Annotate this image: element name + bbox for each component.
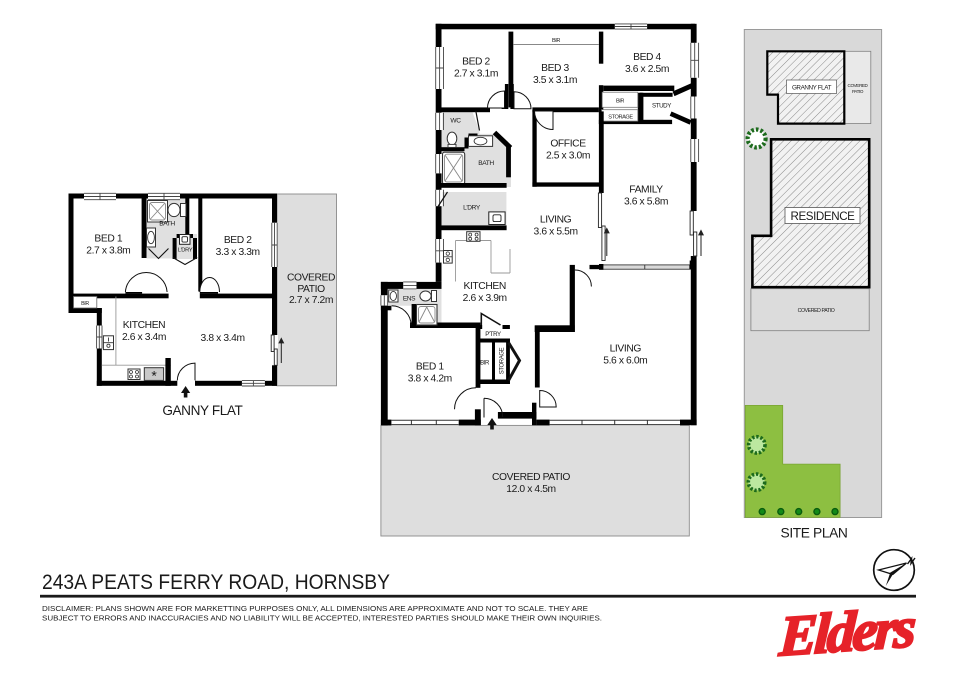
svg-text:3.8 x 4.2m: 3.8 x 4.2m: [408, 374, 452, 385]
svg-text:243A PEATS FERRY ROAD, HORNSBY: 243A PEATS FERRY ROAD, HORNSBY: [42, 569, 390, 594]
svg-text:LIVING: LIVING: [540, 215, 572, 226]
svg-text:2.6 x 3.4m: 2.6 x 3.4m: [122, 332, 166, 343]
svg-text:12.0 x 4.5m: 12.0 x 4.5m: [506, 484, 555, 495]
svg-text:2.5 x 3.0m: 2.5 x 3.0m: [546, 151, 590, 162]
svg-text:COVERED PATIO: COVERED PATIO: [798, 308, 835, 314]
svg-text:FAMILY: FAMILY: [629, 185, 663, 196]
svg-text:3.5 x 3.1m: 3.5 x 3.1m: [533, 75, 577, 86]
svg-text:BED 2: BED 2: [462, 57, 490, 68]
svg-text:SITE PLAN: SITE PLAN: [781, 526, 848, 541]
svg-text:STORAGE: STORAGE: [608, 114, 633, 120]
svg-text:2.6 x 3.9m: 2.6 x 3.9m: [463, 293, 507, 304]
svg-text:BIR: BIR: [480, 361, 490, 367]
svg-text:COVERED: COVERED: [287, 273, 335, 284]
svg-text:RESIDENCE: RESIDENCE: [790, 210, 855, 223]
svg-text:COVERED: COVERED: [848, 83, 869, 88]
svg-text:BATH: BATH: [159, 221, 175, 228]
svg-text:BATH: BATH: [478, 160, 494, 167]
svg-text:L'DRY: L'DRY: [463, 205, 481, 212]
svg-text:STUDY: STUDY: [652, 103, 671, 110]
svg-text:BED 4: BED 4: [633, 52, 661, 63]
svg-text:BED 2: BED 2: [224, 235, 252, 246]
svg-text:SUBJECT TO ERRORS AND INACCURA: SUBJECT TO ERRORS AND INACCURACIES AND N…: [42, 613, 602, 622]
svg-text:LIVING: LIVING: [610, 344, 642, 355]
svg-text:BIR: BIR: [81, 301, 89, 307]
svg-text:BIR: BIR: [616, 99, 624, 105]
svg-text:GANNY FLAT: GANNY FLAT: [162, 403, 242, 418]
svg-text:P'TRY: P'TRY: [485, 331, 501, 338]
svg-text:2.7 x 3.8m: 2.7 x 3.8m: [86, 246, 130, 257]
svg-text:3.6 x 5.5m: 3.6 x 5.5m: [534, 227, 578, 238]
svg-text:3.8 x 3.4m: 3.8 x 3.4m: [201, 333, 245, 344]
svg-text:2.7 x 7.2m: 2.7 x 7.2m: [289, 295, 333, 306]
svg-text:COVERED PATIO: COVERED PATIO: [492, 472, 570, 483]
svg-text:BED 1: BED 1: [416, 362, 444, 373]
svg-text:3.6 x 5.8m: 3.6 x 5.8m: [624, 197, 668, 208]
svg-text:Elders: Elders: [777, 596, 917, 669]
svg-text:ENS: ENS: [403, 296, 416, 303]
svg-text:PATIO: PATIO: [852, 89, 864, 94]
svg-text:KITCHEN: KITCHEN: [123, 320, 165, 331]
svg-text:OFFICE: OFFICE: [550, 139, 586, 150]
svg-text:5.6 x 6.0m: 5.6 x 6.0m: [603, 356, 647, 367]
svg-text:WC: WC: [450, 118, 461, 125]
svg-text:3.6 x 2.5m: 3.6 x 2.5m: [625, 64, 669, 75]
svg-text:STORAGE: STORAGE: [500, 347, 506, 374]
svg-text:BED 1: BED 1: [94, 234, 122, 245]
svg-text:L'DRY: L'DRY: [178, 248, 193, 254]
svg-text:3.3 x 3.3m: 3.3 x 3.3m: [216, 247, 260, 258]
svg-text:DISCLAIMER: PLANS SHOWN ARE FO: DISCLAIMER: PLANS SHOWN ARE FOR MARKETTI…: [42, 604, 588, 613]
svg-text:KITCHEN: KITCHEN: [463, 281, 505, 292]
svg-text:2.7 x 3.1m: 2.7 x 3.1m: [454, 69, 498, 80]
svg-text:BED 3: BED 3: [541, 63, 569, 74]
svg-text:GRANNY FLAT: GRANNY FLAT: [792, 84, 832, 91]
svg-text:PATIO: PATIO: [297, 284, 325, 295]
svg-text:BIR: BIR: [552, 38, 560, 44]
